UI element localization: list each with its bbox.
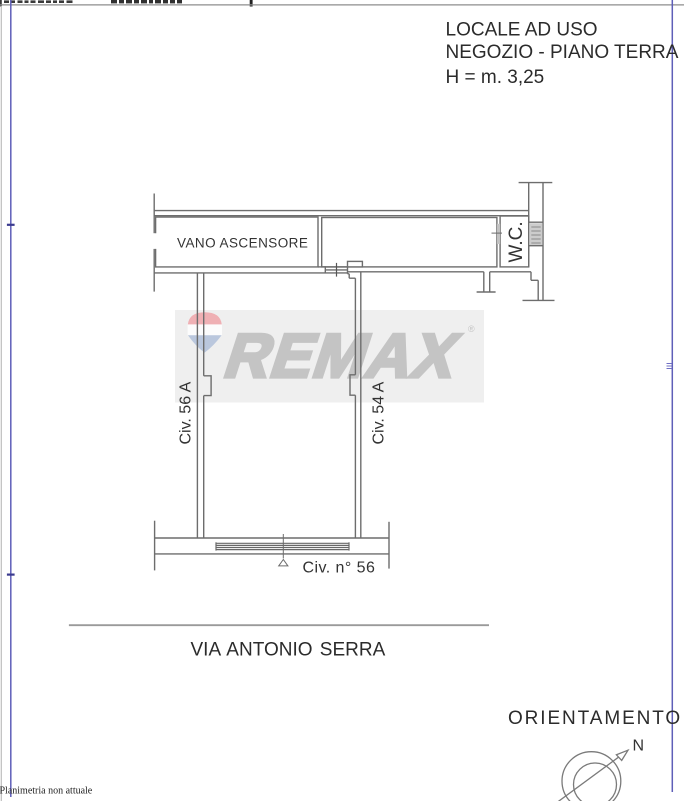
svg-text:®: ®	[468, 324, 475, 334]
svg-text:H = m. 3,25: H = m. 3,25	[446, 67, 545, 88]
svg-text:Civ. n° 56: Civ. n° 56	[303, 560, 376, 577]
svg-text:REMAX: REMAX	[217, 321, 469, 390]
svg-text:LOCALE AD USO: LOCALE AD USO	[446, 20, 598, 41]
svg-text:W.C.: W.C.	[506, 221, 527, 262]
svg-text:ORIENTAMENTO: ORIENTAMENTO	[508, 708, 682, 729]
svg-text:Civ. 56 A: Civ. 56 A	[178, 381, 195, 444]
svg-text:N: N	[633, 738, 645, 755]
svg-text:VANO ASCENSORE: VANO ASCENSORE	[177, 235, 308, 250]
svg-text:Civ. 54 A: Civ. 54 A	[371, 381, 388, 444]
svg-text:VIA ANTONIO SERRA: VIA ANTONIO SERRA	[191, 640, 386, 661]
svg-text:NEGOZIO - PIANO TERRA: NEGOZIO - PIANO TERRA	[446, 42, 679, 63]
svg-text:Planimetria non attuale: Planimetria non attuale	[0, 786, 93, 797]
